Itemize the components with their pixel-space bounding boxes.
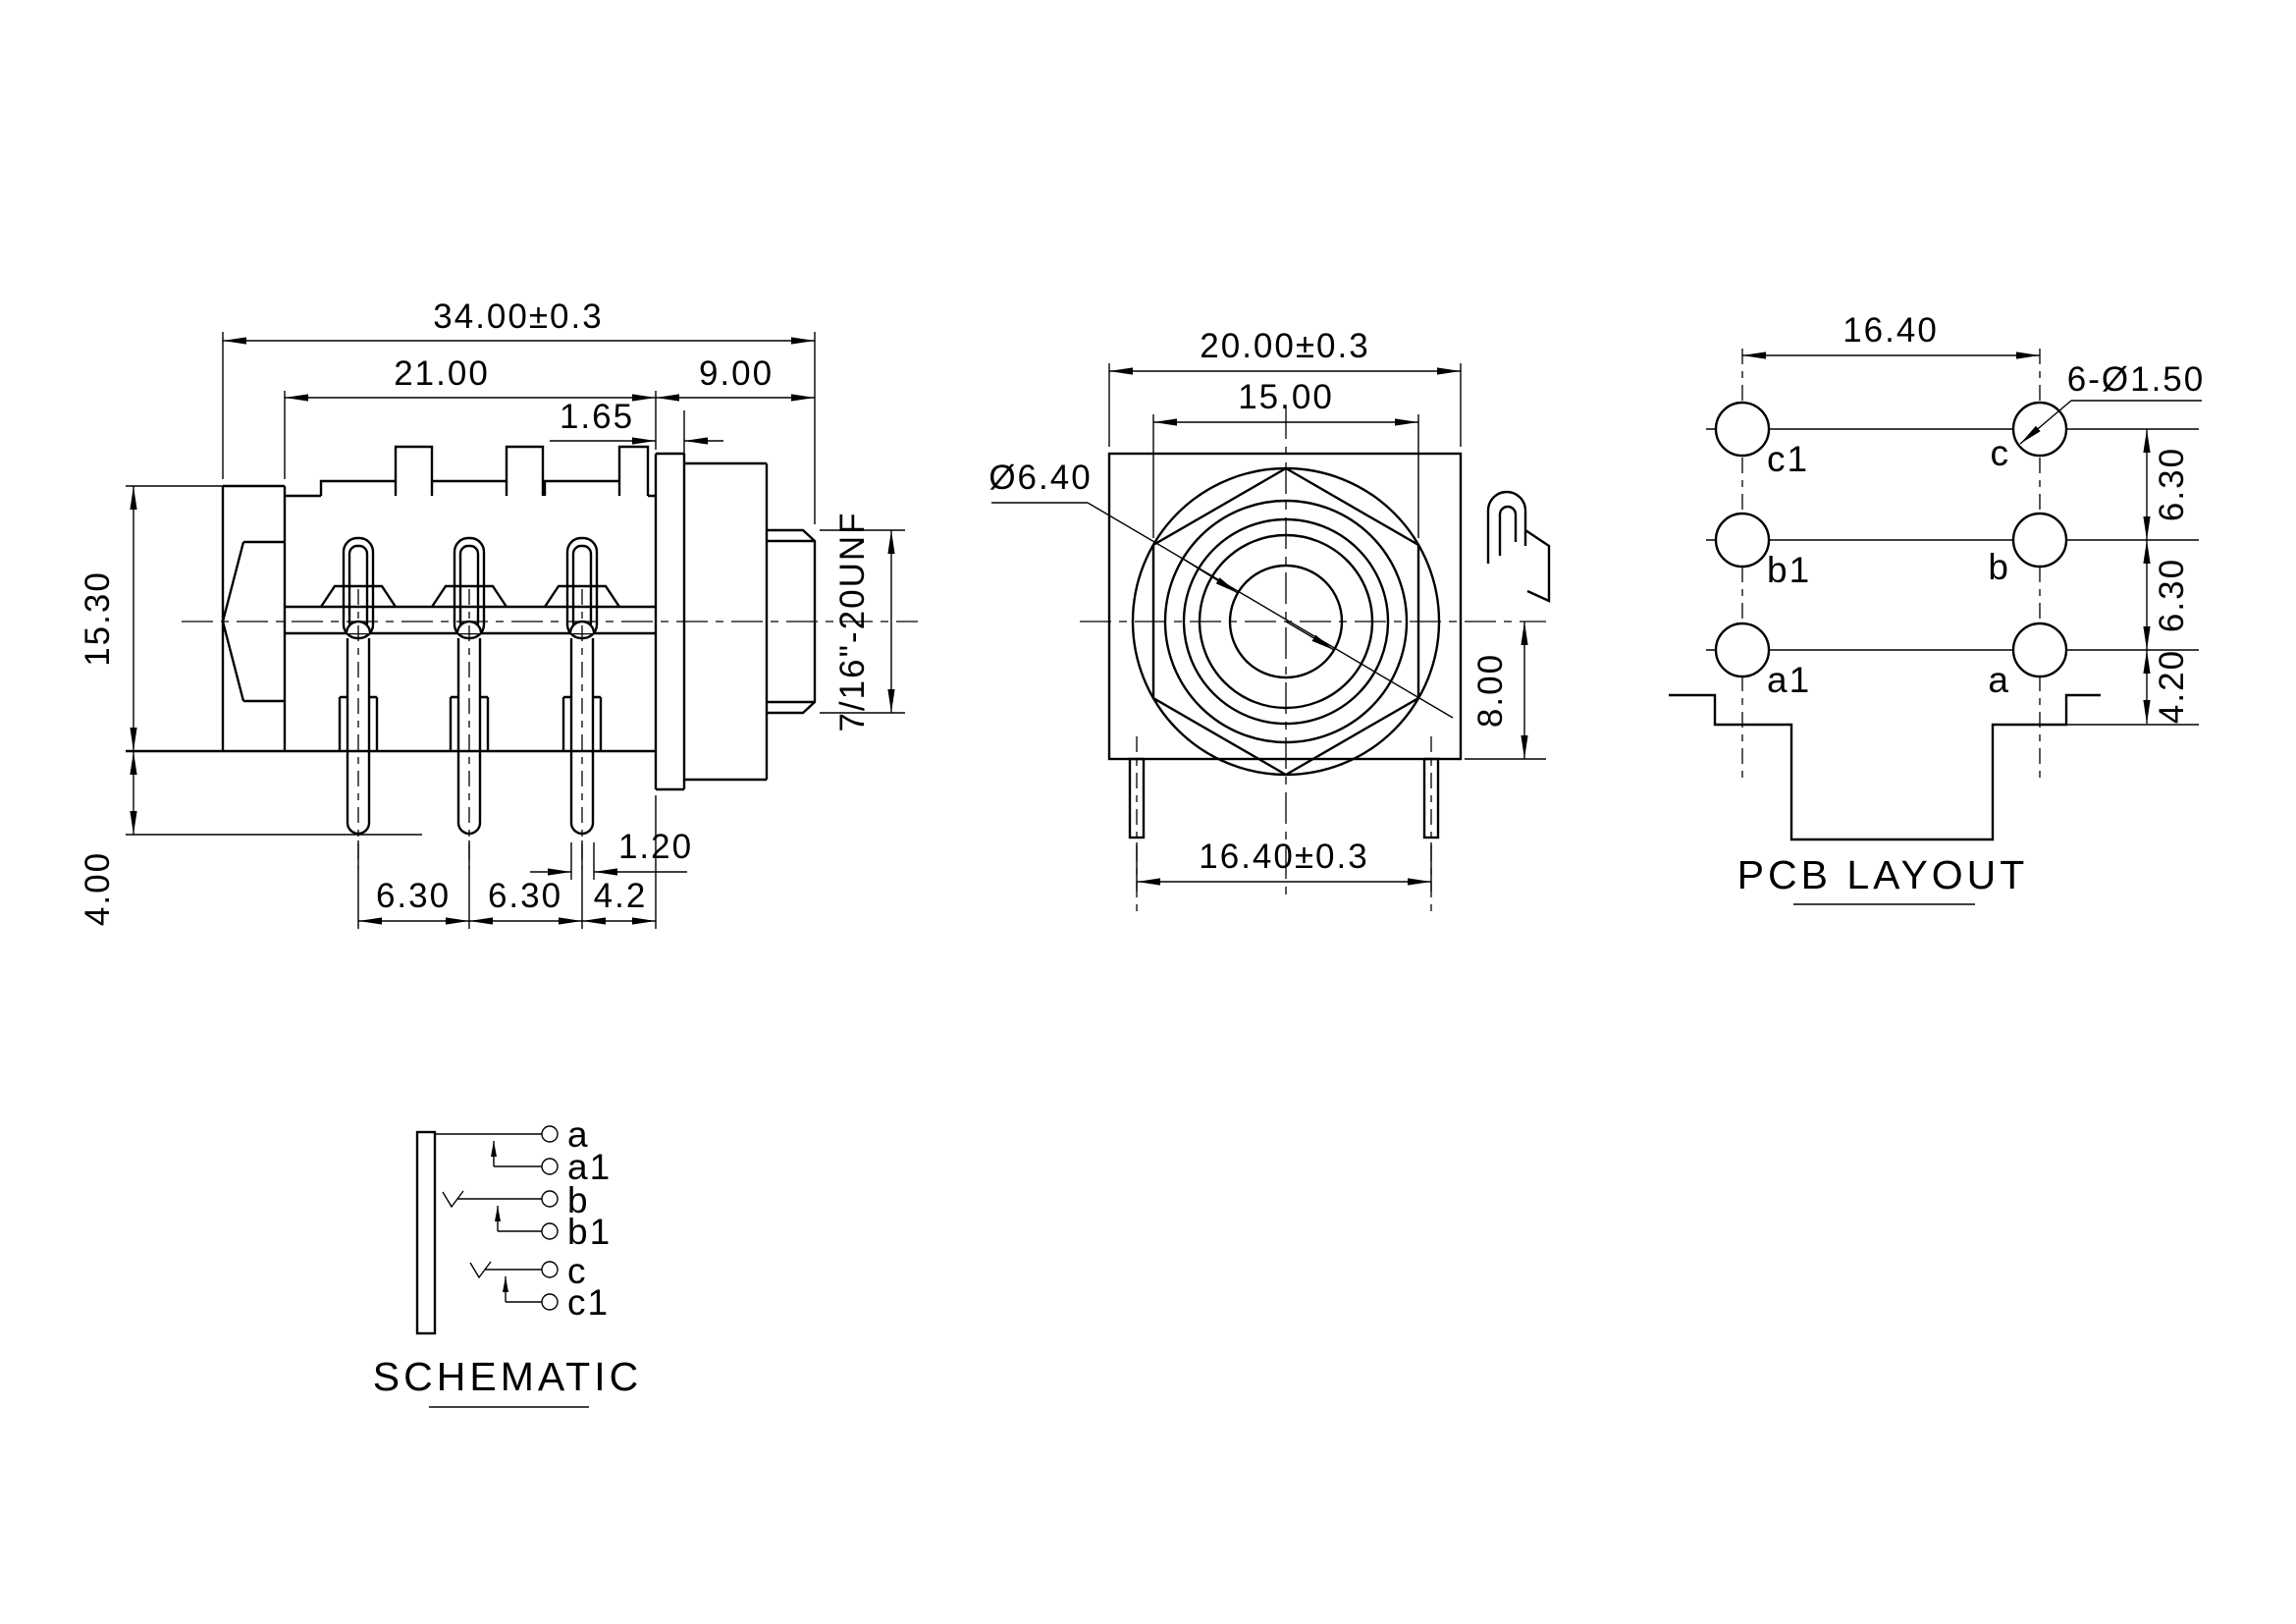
mounting-hole: [1716, 403, 1769, 456]
dimension-label: 15.00: [1238, 378, 1334, 416]
dimension-center-to-bottom: 8.00: [1465, 622, 1546, 759]
dimension-washer-thickness: 1.65: [550, 398, 723, 460]
hole-spec-label: 6-Ø1.50: [2067, 360, 2205, 399]
terminal-a: a: [435, 1114, 590, 1155]
dimension-row-pitches: 6.30 6.30 4.20: [2147, 429, 2191, 724]
dimension-label: 1.20: [618, 828, 693, 866]
contact-towers-outline: [321, 447, 648, 496]
terminal-circle: [542, 1126, 558, 1142]
front-view: Ø6.40 20.00±0.3 15.00 8.00: [988, 327, 1549, 913]
schematic-view: a a1 b b1 c c1: [373, 1114, 642, 1407]
side-view: 34.00±0.3 21.00 9.00 1.65 15.30: [79, 298, 918, 929]
ground-tab: [1488, 492, 1549, 601]
pcb-component-outline: [1669, 695, 2101, 839]
terminal-circle: [542, 1262, 558, 1277]
dimension-label: 20.00±0.3: [1200, 327, 1369, 365]
technical-drawing-canvas: 34.00±0.3 21.00 9.00 1.65 15.30: [0, 0, 2296, 1624]
terminal-circle: [542, 1159, 558, 1174]
pad-label-b: b: [1988, 547, 2010, 587]
terminal-c1-label: c1: [567, 1282, 610, 1323]
mounting-hole: [1716, 514, 1769, 567]
terminal-circle: [542, 1191, 558, 1207]
pcb-layout-view: c1 c b1 b a1 a 16.40 6-Ø1.50 6.30 6.30 4…: [1669, 311, 2205, 904]
dimension-front-pin-span: 16.40±0.3: [1137, 838, 1431, 892]
dimension-pin-width: 1.20: [530, 828, 693, 880]
drawing-sheet: 34.00±0.3 21.00 9.00 1.65 15.30: [0, 0, 2296, 1624]
dimension-label: 34.00±0.3: [433, 298, 603, 336]
dimension-label: 1.65: [560, 398, 634, 436]
dimension-label: 4.00: [79, 851, 117, 926]
terminal-c1: c1: [506, 1276, 610, 1323]
terminal-b1: b1: [498, 1206, 612, 1252]
dimension-label: 6.30: [488, 877, 562, 915]
dimension-label: 8.00: [1471, 653, 1510, 728]
dimension-pin-pitches: 6.30 6.30 4.2: [358, 795, 656, 929]
pad-label-a1: a1: [1767, 660, 1811, 700]
mounting-hole: [2013, 403, 2066, 456]
leader-arrow: [1286, 622, 1334, 650]
dimension-label: 4.2: [594, 877, 648, 915]
schematic-title: SCHEMATIC: [373, 1354, 642, 1399]
dimension-label: 16.40: [1842, 311, 1939, 350]
mounting-hole: [2013, 514, 2066, 567]
terminal-circle: [542, 1294, 558, 1310]
pcb-layout-title: PCB LAYOUT: [1737, 852, 2029, 897]
dimension-label: 21.00: [394, 354, 490, 393]
dimension-label: 6.30: [2153, 447, 2191, 521]
pad-label-c: c: [1991, 433, 2011, 473]
side-body-outline: [126, 486, 656, 751]
mounting-hole: [2013, 623, 2066, 677]
leader-arrow: [1183, 559, 1238, 593]
dimension-label: 4.20: [2153, 649, 2191, 724]
pad-label-a: a: [1988, 660, 2010, 700]
terminal-b1-label: b1: [567, 1212, 612, 1252]
dimension-label: 16.40±0.3: [1199, 838, 1368, 876]
dimension-thread-spec: 7/16"-20UNF: [820, 511, 905, 731]
dimension-label: 6.30: [376, 877, 451, 915]
bore-diameter-label: Ø6.40: [988, 459, 1092, 497]
leader-line: [1088, 503, 1453, 718]
dimension-nut-flats: 15.00: [1153, 378, 1418, 538]
terminal-circle: [542, 1223, 558, 1239]
thread-spec-label: 7/16"-20UNF: [833, 511, 872, 731]
dimension-pin-length: 4.00: [79, 751, 133, 926]
dimension-body-height: 15.30: [79, 486, 422, 835]
pad-label-b1: b1: [1767, 550, 1811, 590]
dimension-bushing-length: 9.00: [656, 354, 815, 398]
mounting-hole: [1716, 623, 1769, 677]
sleeve-bar: [417, 1132, 435, 1333]
dimension-overall-length: 34.00±0.3: [223, 298, 815, 524]
dimension-label: 9.00: [699, 354, 774, 393]
dimension-hole-span: 16.40: [1742, 311, 2040, 355]
dimension-label: 6.30: [2153, 558, 2191, 632]
dimension-label: 15.30: [79, 570, 117, 667]
terminal-a1: a1: [494, 1141, 612, 1187]
pad-label-c1: c1: [1767, 439, 1809, 479]
